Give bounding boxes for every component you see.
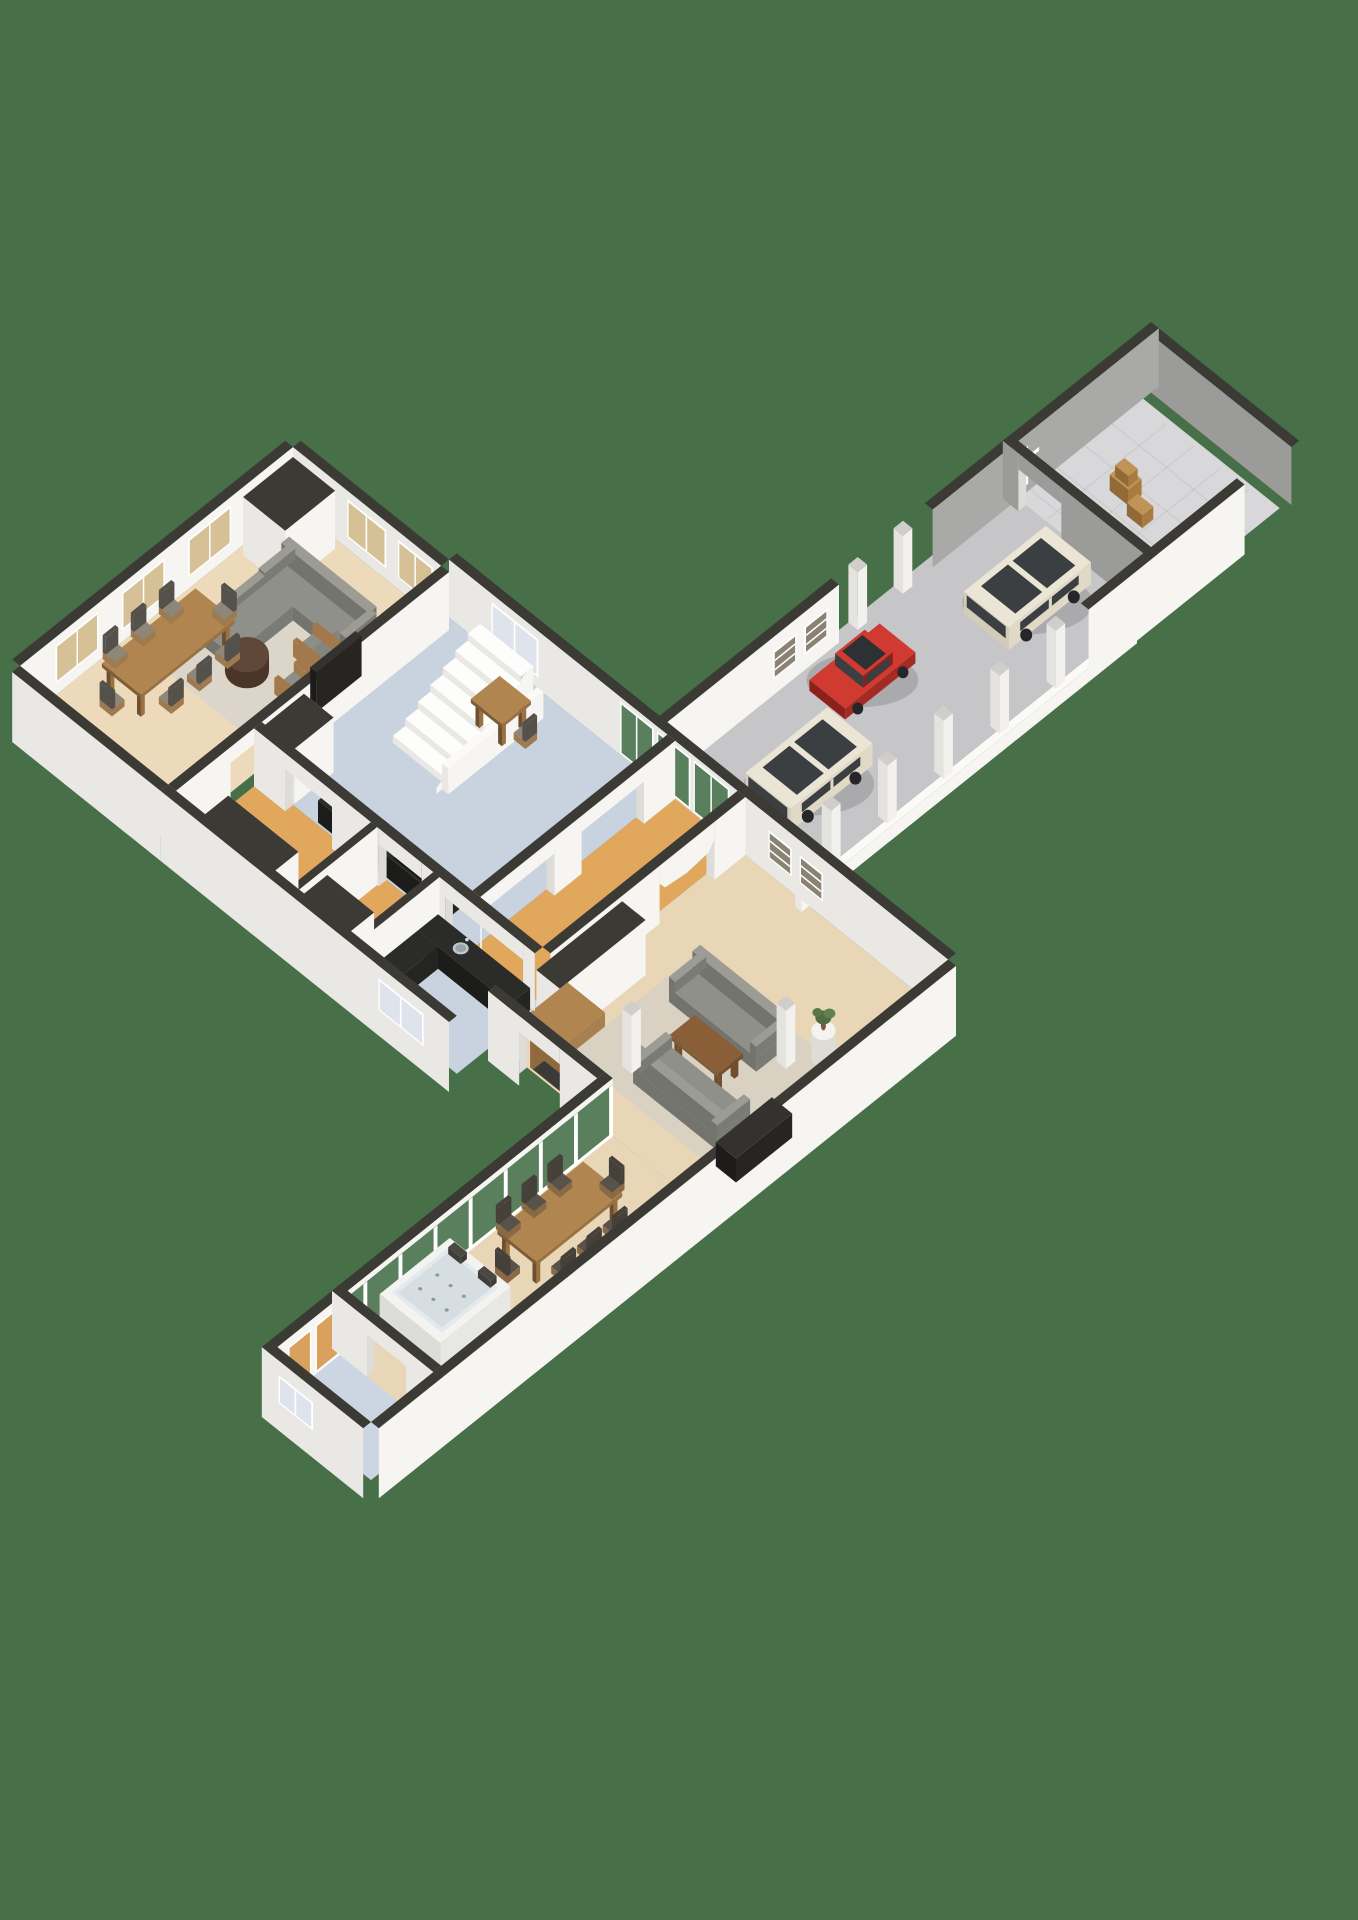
carport-pillar-se-4 [990, 661, 1009, 734]
carport-pillar-se-5 [1047, 616, 1066, 689]
floorplan-3d-render [0, 0, 1358, 1920]
carport-pillar-nw-2 [894, 521, 913, 594]
family-room-pillar-2 [622, 1001, 641, 1074]
floorplan-svg [0, 0, 1358, 1920]
carport-pillar-se-3 [934, 706, 953, 779]
carport-pillar-nw-1 [848, 557, 867, 630]
floorplan-canvas [0, 0, 1358, 1920]
carport-pillar-se-2 [878, 751, 897, 824]
family-room-pillar-1 [777, 996, 796, 1069]
